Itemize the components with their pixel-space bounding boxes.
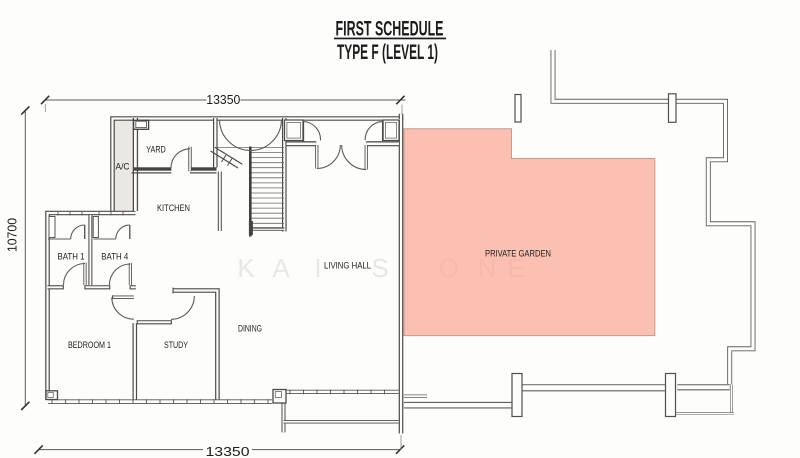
svg-text:KITCHEN: KITCHEN: [157, 203, 190, 213]
svg-text:O: O: [439, 253, 459, 283]
svg-text:TYPE F (LEVEL 1): TYPE F (LEVEL 1): [337, 41, 438, 64]
svg-text:DINING: DINING: [238, 324, 262, 334]
svg-text:PRIVATE GARDEN: PRIVATE GARDEN: [485, 248, 551, 258]
svg-text:A: A: [272, 253, 290, 283]
svg-text:S: S: [371, 253, 388, 283]
svg-text:BEDROOM 1: BEDROOM 1: [68, 340, 111, 350]
svg-text:FIRST SCHEDULE: FIRST SCHEDULE: [336, 18, 444, 41]
svg-text:A/C: A/C: [116, 162, 131, 172]
svg-text:13350: 13350: [206, 93, 240, 107]
svg-text:LIVING HALL: LIVING HALL: [324, 260, 371, 270]
svg-text:I: I: [314, 253, 321, 283]
svg-text:BATH 1: BATH 1: [58, 251, 85, 261]
svg-text:BATH 4: BATH 4: [101, 251, 128, 261]
svg-text:10700: 10700: [6, 218, 20, 252]
svg-text:STUDY: STUDY: [164, 340, 188, 350]
svg-text:K: K: [237, 253, 255, 283]
svg-text:13350: 13350: [206, 445, 250, 458]
svg-text:YARD: YARD: [146, 144, 166, 154]
